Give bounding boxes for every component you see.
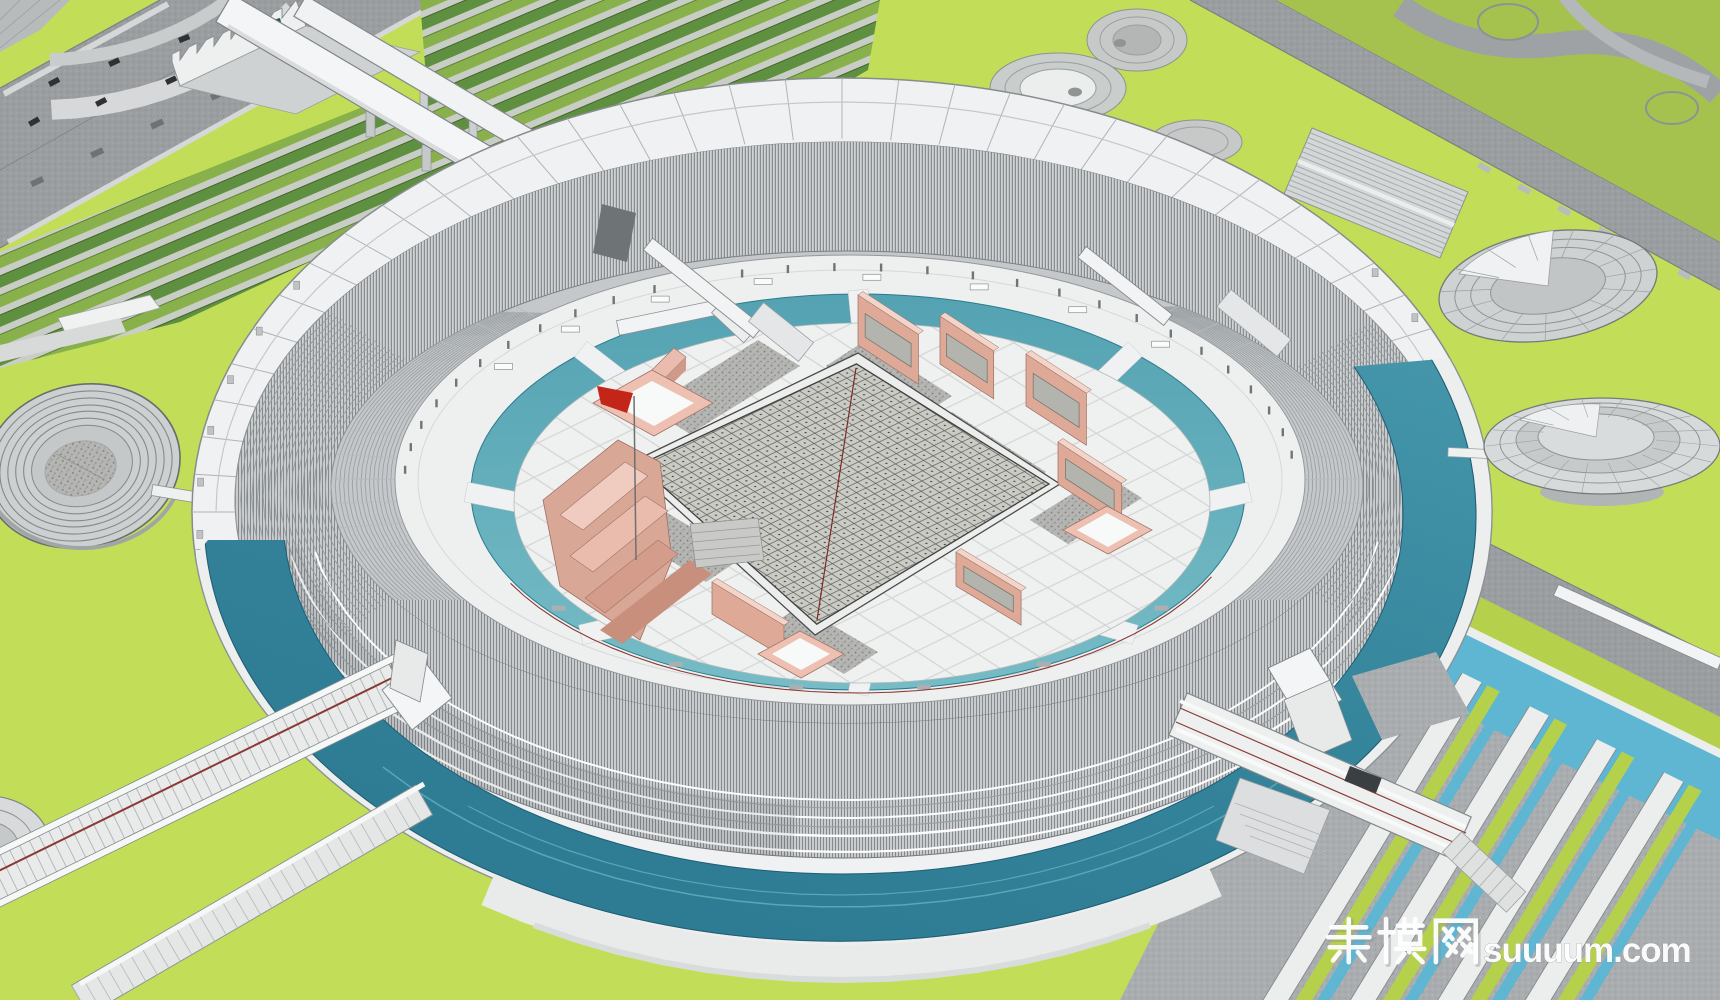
svg-text:suuuum.com: suuuum.com xyxy=(1483,931,1691,970)
